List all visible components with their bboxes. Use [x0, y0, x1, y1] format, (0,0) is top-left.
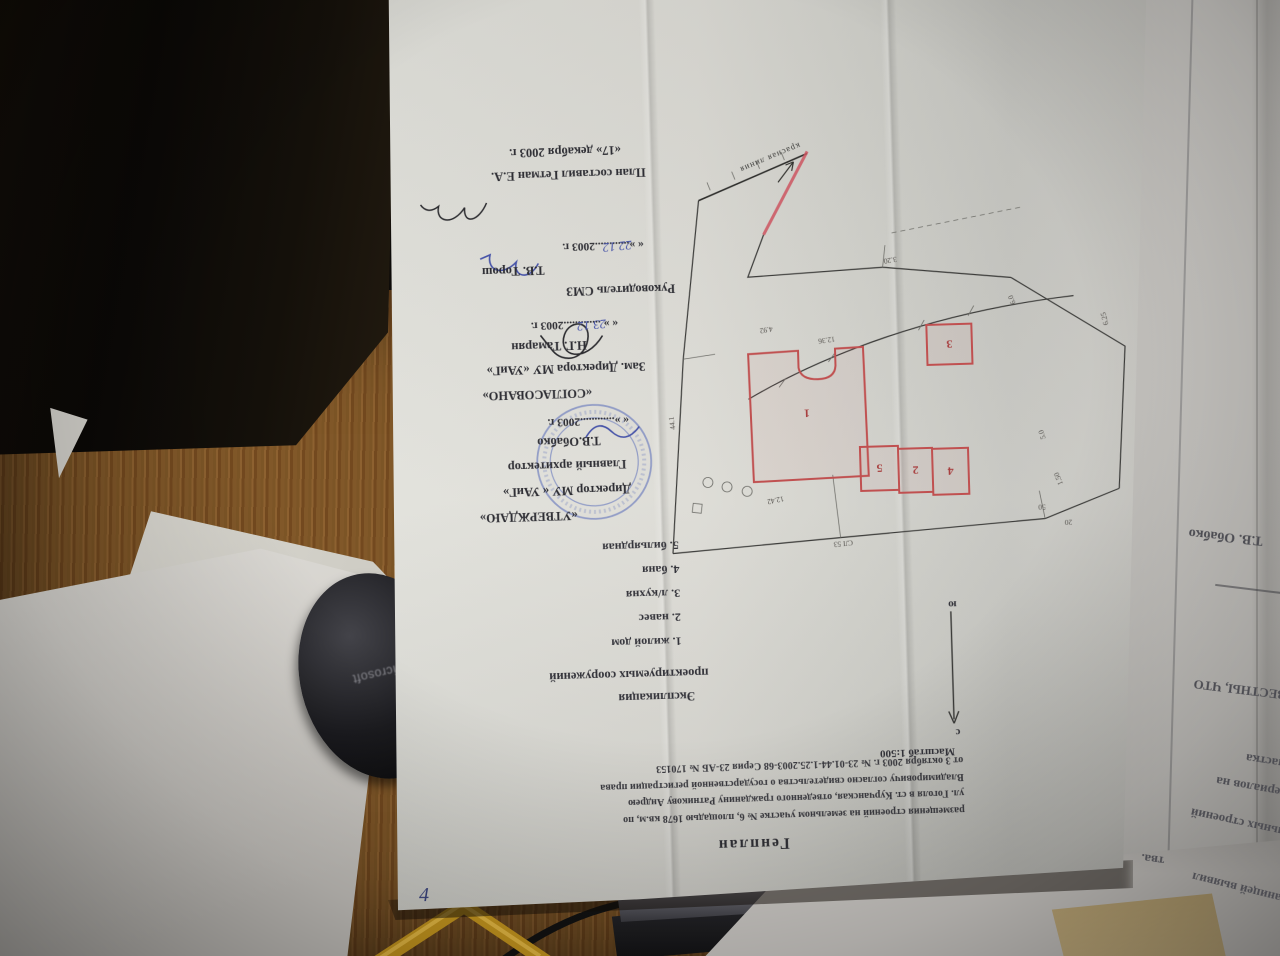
approval-line: Н.Г. Тамарян	[511, 337, 587, 354]
genplan-document-sheet: 4 Генплан размещения строений на земельн…	[370, 0, 1148, 914]
handwritten-date: 22 12	[602, 237, 633, 256]
getman-signature	[421, 203, 487, 221]
right-sheet-fragment: тва.	[1140, 850, 1165, 869]
north-arrow-icon	[946, 611, 959, 723]
genplan-document-content: 4 Генплан размещения строений на земельн…	[358, 0, 1160, 920]
approval-line: « »............2003 г.	[547, 414, 629, 428]
handwritten-date: 23 12	[576, 315, 607, 334]
approval-line: «УТВЕРЖДАЮ»	[480, 507, 578, 525]
approval-line: Т.В. Торош	[482, 262, 545, 279]
approval-line: Т.В.Обабко	[537, 433, 601, 450]
desk-photo-scene: КучуйвикРобок. ева,дога Вла 18.ид чуврия…	[0, 0, 1280, 956]
stamps-and-signatures	[358, 0, 1160, 920]
